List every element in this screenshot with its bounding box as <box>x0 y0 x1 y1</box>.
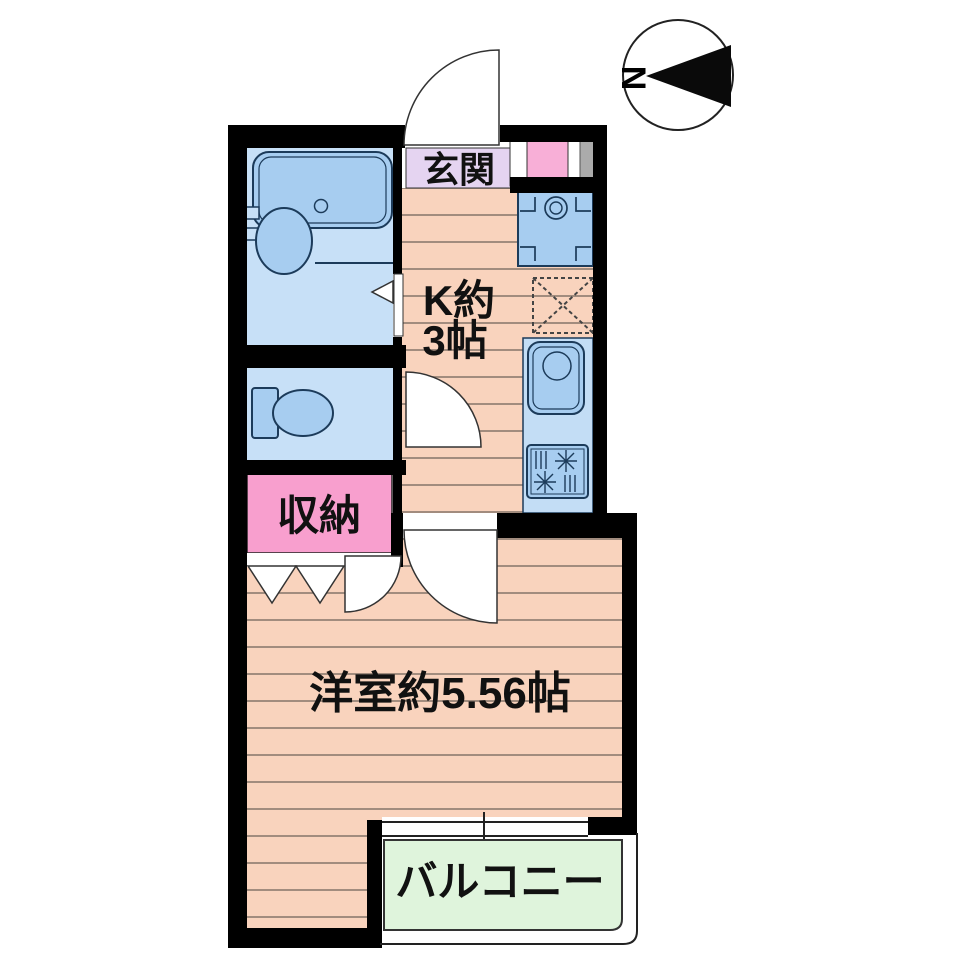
washing-machine-space <box>518 192 593 266</box>
genkan-label: 玄関 <box>423 149 495 190</box>
wall-bathroom-south <box>247 345 406 368</box>
wall-corridor-upper <box>393 148 402 274</box>
shoe-cabinet <box>527 138 568 180</box>
wall-corridor-lower <box>393 337 402 513</box>
wall-toilet-south <box>247 460 406 475</box>
wall-top-right <box>500 125 607 142</box>
western-room-label: 洋室約5.56帖 <box>309 668 571 718</box>
kitchen-label-line2: 3帖 <box>422 317 487 364</box>
wall-room-right <box>622 513 637 835</box>
balcony-label: バルコニー <box>395 858 604 905</box>
compass-north-label: N <box>614 66 652 91</box>
floor-plan: N <box>0 0 960 960</box>
washbasin-icon <box>256 208 312 274</box>
wall-bottom-left <box>228 928 382 948</box>
wall-kitchen-south <box>497 513 637 538</box>
toilet-room <box>247 368 393 460</box>
bathroom <box>243 148 394 345</box>
kitchen-sink-icon <box>528 342 584 414</box>
bathroom-door-panel <box>394 274 403 336</box>
wall-room-bottom-right <box>588 817 622 835</box>
wall-top-left <box>228 125 405 148</box>
toilet-bowl-icon <box>273 390 333 436</box>
wall-under-shoe-cabinet <box>510 177 607 193</box>
wall-balcony-left-stub <box>367 820 382 948</box>
storage-label: 収納 <box>277 492 361 539</box>
wall-left <box>228 125 247 948</box>
kitchen-equipment <box>518 192 593 513</box>
